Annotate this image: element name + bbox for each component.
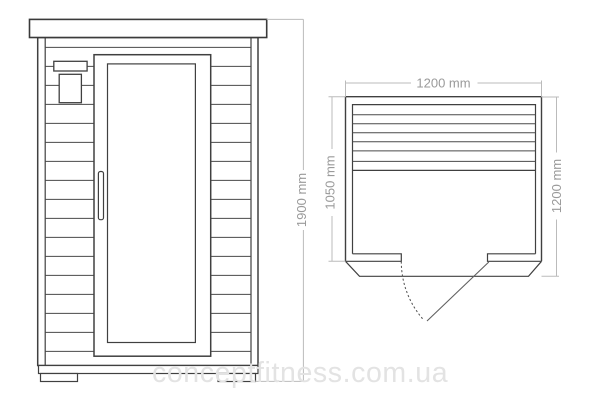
svg-text:1900 mm: 1900 mm: [294, 173, 309, 227]
svg-text:conceptfitness.com.ua: conceptfitness.com.ua: [152, 357, 448, 389]
svg-text:1200 mm: 1200 mm: [416, 76, 470, 91]
svg-text:1200 mm: 1200 mm: [549, 159, 564, 213]
svg-text:1050 mm: 1050 mm: [322, 155, 337, 209]
